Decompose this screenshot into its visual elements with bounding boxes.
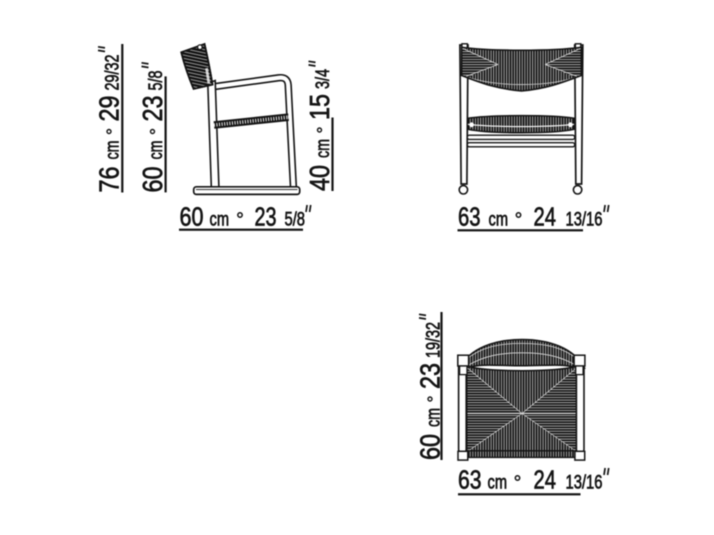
svg-text:cm: cm — [489, 209, 509, 230]
svg-text:13/16: 13/16 — [566, 472, 603, 493]
svg-text:5/8: 5/8 — [146, 71, 167, 91]
svg-text:15: 15 — [304, 94, 335, 120]
svg-text:cm: cm — [488, 472, 508, 493]
svg-text:cm: cm — [210, 209, 230, 230]
svg-text:cm: cm — [146, 141, 167, 160]
svg-text:cm: cm — [103, 141, 124, 160]
svg-text:40: 40 — [304, 165, 335, 191]
svg-text:76: 76 — [94, 167, 125, 193]
svg-text:19/32: 19/32 — [424, 322, 445, 358]
svg-text:cm: cm — [313, 139, 334, 158]
svg-text:29/32: 29/32 — [103, 55, 124, 91]
svg-text:5/8: 5/8 — [285, 209, 306, 230]
svg-text:63: 63 — [458, 201, 481, 231]
svg-text:cm: cm — [424, 408, 445, 427]
svg-text:24: 24 — [534, 464, 557, 494]
svg-text:60: 60 — [180, 201, 204, 231]
svg-text:23: 23 — [415, 363, 446, 389]
svg-text:23: 23 — [255, 201, 277, 231]
svg-text:3/4: 3/4 — [313, 69, 334, 89]
svg-text:23: 23 — [137, 96, 168, 122]
svg-text:60: 60 — [415, 434, 446, 460]
svg-text:29: 29 — [94, 96, 125, 122]
svg-text:24: 24 — [534, 201, 557, 231]
svg-text:63: 63 — [458, 464, 482, 494]
svg-text:13/16: 13/16 — [566, 209, 603, 230]
svg-text:60: 60 — [137, 167, 168, 193]
